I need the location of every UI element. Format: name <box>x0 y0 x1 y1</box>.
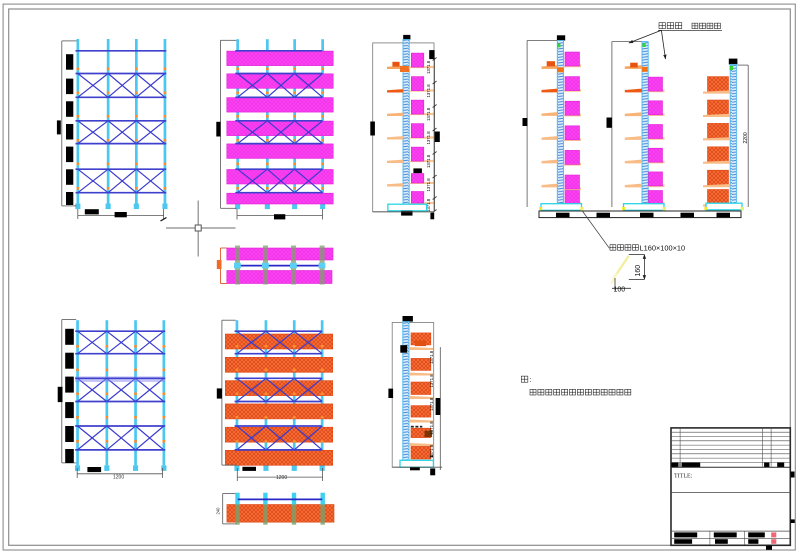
svg-text:L160×100×10: L160×100×10 <box>640 244 686 253</box>
svg-text:1371.8: 1371.8 <box>426 131 431 145</box>
svg-text:1371.8: 1371.8 <box>429 374 434 388</box>
svg-text:100: 100 <box>614 287 626 294</box>
svg-text:1371.8: 1371.8 <box>426 178 431 192</box>
svg-text:240: 240 <box>216 507 221 515</box>
svg-text:1371.8: 1371.8 <box>426 84 431 98</box>
svg-text:1371.8: 1371.8 <box>426 107 431 121</box>
svg-text:1371.8: 1371.8 <box>426 154 431 168</box>
svg-text:1200: 1200 <box>276 475 287 481</box>
svg-text:2200: 2200 <box>743 132 749 143</box>
svg-text:1371.8: 1371.8 <box>429 421 434 435</box>
svg-text::: : <box>530 375 532 384</box>
svg-text:160: 160 <box>635 265 642 277</box>
svg-text:1200: 1200 <box>113 475 124 481</box>
svg-text:TITLE:: TITLE: <box>674 474 693 480</box>
svg-text:1371.8: 1371.8 <box>429 350 434 364</box>
svg-text:1371.8: 1371.8 <box>429 397 434 411</box>
svg-text:1371.8: 1371.8 <box>426 60 431 74</box>
svg-text:1371.8: 1371.8 <box>429 444 434 458</box>
